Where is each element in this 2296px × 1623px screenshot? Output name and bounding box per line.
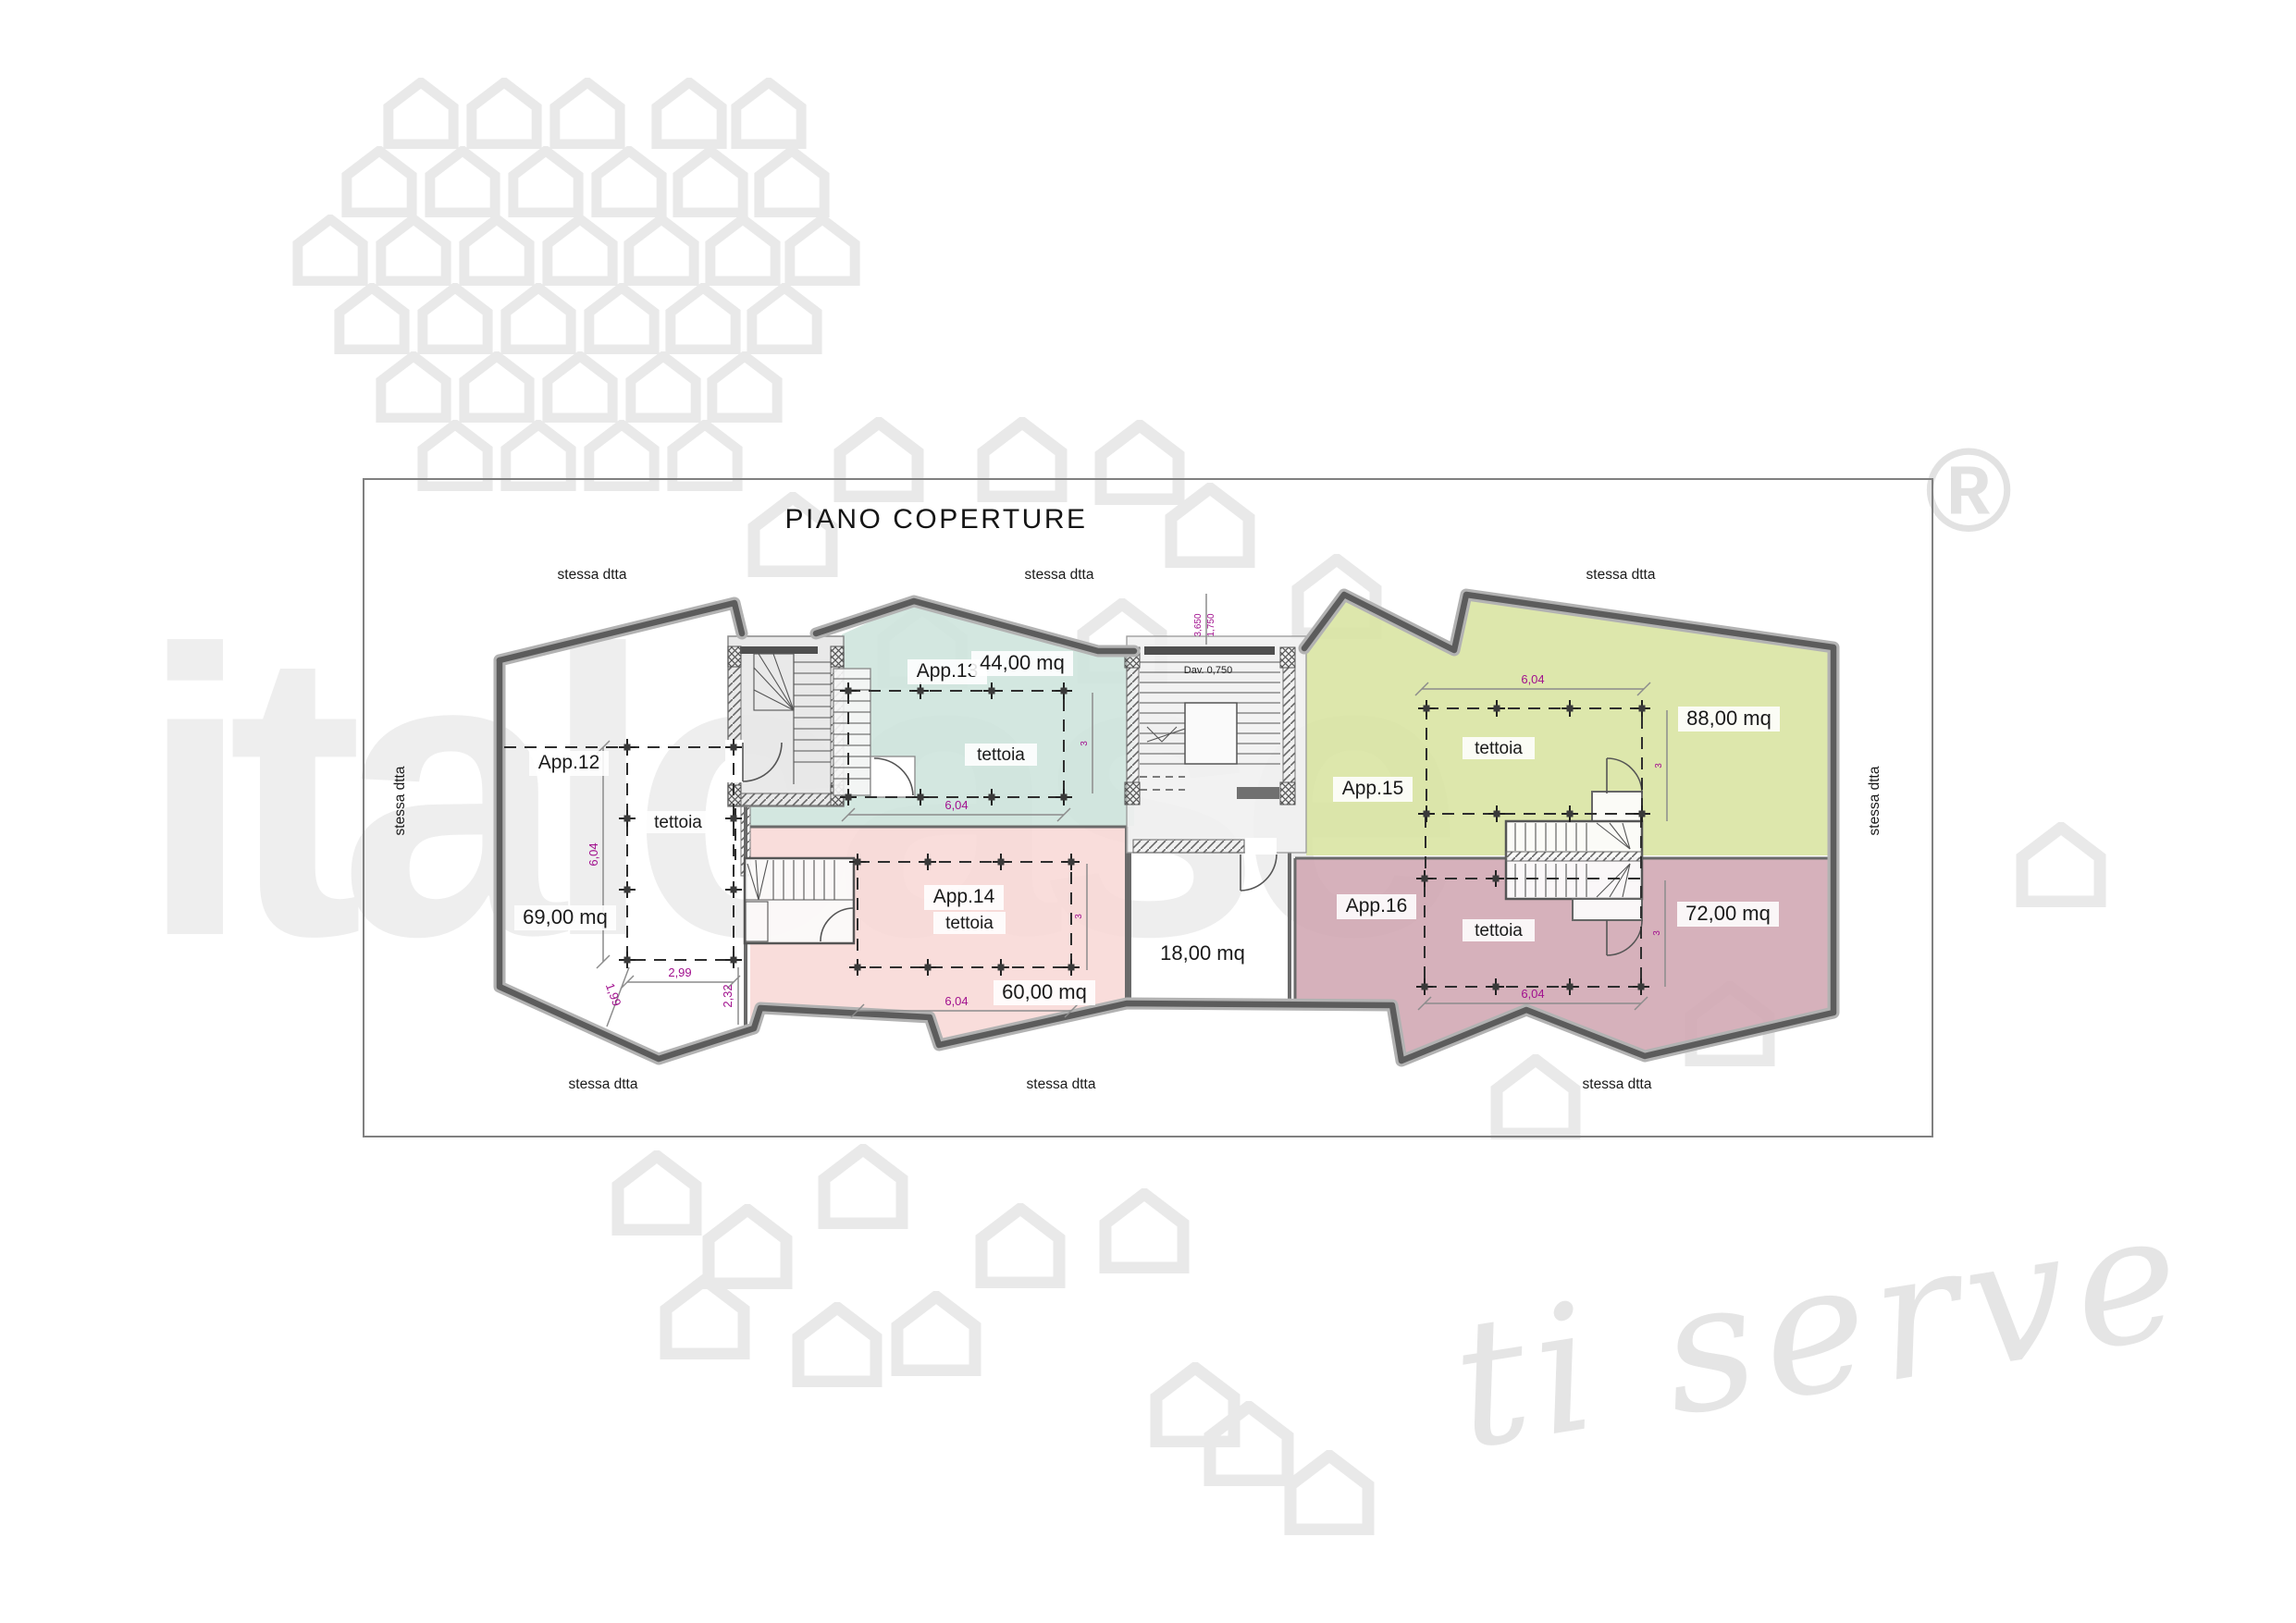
dimension-label: 3 [1654,763,1664,768]
brand-script-text: ti serve [1440,1171,2202,1488]
house-icon [464,356,529,418]
apartment-label-app15: App.15 [1342,778,1404,799]
house-icon [339,288,404,350]
area-label-app14: 60,00 mq [1002,980,1087,1003]
house-icon [981,1209,1059,1283]
dimension-label: 3 [1080,741,1090,746]
house-icon [430,151,495,213]
house-icon-grid [298,82,855,486]
canopy-label-app13: tettoia [977,745,1025,765]
house-icon [298,219,363,281]
house-icon [555,82,620,144]
orientation-label: stessa dtta [569,1076,638,1092]
apartment-label-app14: App.14 [933,886,995,907]
house-icon [597,151,661,213]
house-icon [631,356,696,418]
canopy-label-app14: tettoia [945,914,994,933]
stair-dim-label: 3,650 [1193,613,1204,636]
house-icon [824,1150,902,1223]
house-icon [709,1210,786,1284]
canopy-label-app16: tettoia [1475,921,1523,941]
dimension-label: 2,99 [668,965,691,979]
house-icon [347,151,412,213]
stairwell-southwest-icon [745,858,854,943]
orientation-label: stessa dtta [1583,1076,1652,1092]
house-icon [629,219,694,281]
house-icon [752,288,817,350]
house-icon [1290,1456,1368,1530]
house-icon [736,82,801,144]
house-icon [897,1297,975,1371]
house-icon [472,82,537,144]
house-icon [712,356,777,418]
stair-note-label: Dav. 0,750 [1184,665,1232,676]
area-label-stairwell: 18,00 mq [1160,941,1245,965]
house-icon [589,288,654,350]
area-label-app13: 44,00 mq [980,651,1065,674]
house-icon [666,1280,744,1354]
house-icon [790,219,855,281]
orientation-label: stessa dtta [1025,567,1094,583]
house-icon [798,1308,876,1382]
dimension-label: 6,04 [1521,987,1544,1001]
house-icon [1101,425,1179,499]
orientation-label: stessa dtta [558,567,627,583]
apartment-label-app13: App.13 [917,660,979,682]
orientation-label: stessa dtta [1586,567,1656,583]
page-title: PIANO COPERTURE [785,504,1088,535]
apartment-label-app12: App.12 [538,752,600,773]
dimension-label: 6,04 [944,994,968,1008]
house-icon [513,151,578,213]
registered-mark-icon: ® [1925,424,2012,557]
stair-dim-label: 1,750 [1206,613,1216,636]
dimension-label: 6,04 [586,842,600,866]
house-icon [840,423,918,497]
house-icon [506,288,571,350]
stairwell-central-icon: Dav. 0,750 3,650 1,750 [1125,613,1306,891]
house-icon [983,423,1061,497]
orientation-label: stessa dtta [1027,1076,1096,1092]
house-icon [673,424,737,486]
orientation-label: stessa dtta [392,766,408,835]
house-icon [710,219,775,281]
house-icon [657,82,722,144]
house-icon [759,151,824,213]
canopy-label-app12: tettoia [654,813,702,832]
house-icon [389,82,453,144]
orientation-label: stessa dtta [1867,766,1882,835]
page: italcase [0,0,2296,1623]
area-label-app16: 72,00 mq [1685,902,1771,925]
dimension-label: 6,04 [944,798,968,812]
house-icon [1497,1060,1574,1134]
house-icon [671,288,735,350]
dimension-label: 3 [1652,930,1662,936]
house-icon [548,219,612,281]
house-icon [548,356,612,418]
house-icon [423,424,488,486]
house-icon [381,356,446,418]
house-icon [423,288,488,350]
dimension-label: 2,32 [721,984,734,1007]
area-label-app12: 69,00 mq [523,905,608,928]
area-label-app15: 88,00 mq [1686,707,1771,730]
canopy-label-app15: tettoia [1475,739,1523,758]
house-icon [464,219,529,281]
floor-plan-svg: italcase [0,0,2296,1623]
dimension-label: 6,04 [1521,672,1544,686]
house-icon [381,219,446,281]
house-icon [589,424,654,486]
apartment-label-app16: App.16 [1346,895,1408,916]
house-icon [506,424,571,486]
house-icon [1105,1194,1183,1268]
house-icon [678,151,743,213]
house-icon [2022,828,2100,902]
dimension-label: 3 [1074,914,1084,919]
house-icon [618,1156,696,1230]
